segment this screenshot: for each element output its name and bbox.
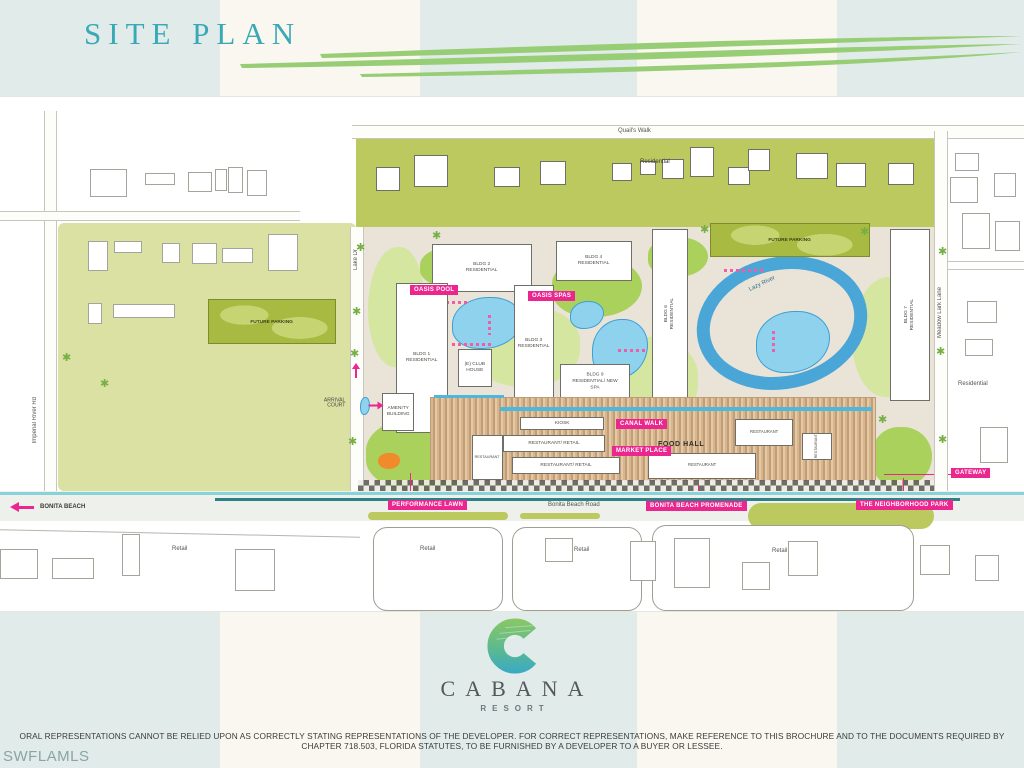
oasis-pool-badge: OASIS POOL bbox=[410, 285, 458, 295]
bonita-beach-label: BONITA BEACH bbox=[40, 504, 85, 510]
palm-tree-icon bbox=[356, 243, 365, 254]
retail-label: Retail bbox=[420, 546, 435, 552]
neighborhood-park-badge: THE NEIGHBORHOOD PARK bbox=[856, 500, 953, 510]
building-outline bbox=[414, 155, 448, 187]
building-outline bbox=[376, 167, 400, 191]
meadow-lark-lane-label: Meadow Lark Lane bbox=[937, 287, 943, 338]
building-outline bbox=[188, 172, 212, 192]
building-outline bbox=[545, 538, 573, 562]
palm-tree-icon bbox=[938, 435, 947, 446]
building-outline bbox=[90, 169, 127, 197]
retail-boundary-line bbox=[0, 529, 360, 538]
legal-disclaimer: ORAL REPRESENTATIONS CANNOT BE RELIED UP… bbox=[9, 731, 1015, 751]
future-parking-west-label: FUTURE PARKING bbox=[251, 319, 294, 324]
retail-parcel bbox=[512, 527, 642, 611]
palm-tree-icon bbox=[938, 247, 947, 258]
retail-label: Retail bbox=[574, 547, 589, 553]
building-outline bbox=[145, 173, 175, 185]
road-edge-line bbox=[0, 492, 1024, 495]
building-outline bbox=[674, 538, 710, 588]
restaurant-foodhall-north: RESTAURANT bbox=[735, 419, 793, 446]
restaurant-west: RESTAURANT bbox=[472, 435, 503, 480]
palm-tree-icon bbox=[860, 227, 869, 238]
bldg-3: BLDG 3 RESIDENTIAL bbox=[514, 285, 554, 403]
lounge-chairs bbox=[452, 343, 492, 346]
building-outline bbox=[888, 163, 914, 185]
offsite-road-topleft bbox=[0, 211, 300, 221]
restaurant-foodhall-south: RESTAURANT bbox=[648, 453, 756, 479]
quails-walk-label: Quail's Walk bbox=[618, 128, 651, 134]
swoosh-decoration bbox=[230, 34, 1024, 78]
retail-label: Retail bbox=[772, 548, 787, 554]
building-outline bbox=[235, 549, 275, 591]
canal-walk-badge: CANAL WALK bbox=[616, 419, 667, 429]
building-outline bbox=[612, 163, 632, 181]
building-outline bbox=[268, 234, 298, 271]
building-outline bbox=[114, 241, 142, 253]
road-center-line bbox=[215, 498, 960, 501]
lounge-chairs bbox=[488, 315, 491, 335]
future-parking-west: FUTURE PARKING bbox=[208, 299, 336, 344]
building-outline bbox=[742, 562, 770, 590]
restaurant-retail-2: RESTAURANT/ RETAIL bbox=[512, 457, 620, 474]
building-outline bbox=[122, 534, 140, 576]
bonita-beach-arrow-icon bbox=[14, 506, 34, 509]
building-outline bbox=[788, 541, 818, 576]
bonita-beach-road-label: Bonita Beach Road bbox=[548, 502, 600, 508]
bldg-7: BLDG 7 RESIDENTIAL bbox=[890, 229, 930, 401]
bldg-6: BLDG 6 RESIDENTIAL bbox=[652, 229, 688, 399]
gateway-badge: GATEWAY bbox=[951, 468, 990, 478]
entry-arrow-icon bbox=[355, 365, 357, 378]
building-outline bbox=[222, 248, 253, 263]
bldg-4: BLDG 4 RESIDENTIAL bbox=[556, 241, 632, 281]
palm-tree-icon bbox=[348, 437, 357, 448]
future-parking-east-label: FUTURE PARKING bbox=[769, 238, 812, 243]
kiosk: KIOSK bbox=[520, 417, 604, 430]
lounge-chairs bbox=[772, 331, 775, 353]
median-strip bbox=[368, 512, 508, 520]
canal-water bbox=[500, 407, 872, 411]
building-outline bbox=[690, 147, 714, 177]
offsite-road-east bbox=[948, 261, 1024, 262]
building-outline bbox=[192, 243, 217, 264]
restaurant-foodhall-east: RESTAURANT bbox=[802, 433, 832, 460]
palm-tree-icon bbox=[352, 307, 361, 318]
site-plan-map: Imperial River Rd Quail's Walk Residenti… bbox=[0, 96, 1024, 612]
oasis-spas-badge: OASIS SPAS bbox=[528, 291, 575, 301]
cabana-logo-icon bbox=[486, 616, 544, 676]
building-outline bbox=[630, 541, 656, 581]
building-outline bbox=[950, 177, 978, 203]
building-outline bbox=[215, 169, 227, 191]
offsite-road-east bbox=[948, 269, 1024, 270]
building-outline bbox=[88, 241, 108, 271]
building-outline bbox=[975, 555, 999, 581]
club-house: (E) CLUB HOUSE bbox=[458, 349, 492, 387]
lounge-chairs bbox=[724, 269, 764, 272]
market-place-badge: MARKET PLACE bbox=[612, 446, 671, 456]
building-outline bbox=[113, 304, 175, 318]
building-outline bbox=[994, 173, 1016, 197]
arrival-court-label: ARRIVAL COURT bbox=[324, 398, 345, 408]
palm-tree-icon bbox=[878, 415, 887, 426]
building-outline bbox=[980, 427, 1008, 463]
building-outline bbox=[0, 549, 38, 579]
palm-tree-icon bbox=[350, 349, 359, 360]
building-outline bbox=[967, 301, 997, 323]
residential-right-label: Residential bbox=[958, 381, 988, 387]
median-strip bbox=[520, 513, 600, 519]
lounge-chairs bbox=[618, 349, 646, 352]
quails-walk-road bbox=[352, 125, 1024, 139]
building-outline bbox=[962, 213, 990, 249]
amenity-arrow-icon bbox=[369, 405, 382, 407]
building-outline bbox=[494, 167, 520, 187]
building-outline bbox=[796, 153, 828, 179]
building-outline bbox=[247, 170, 267, 196]
palm-tree-icon bbox=[62, 353, 71, 364]
brand-subtitle: RESORT bbox=[0, 704, 1024, 713]
building-outline bbox=[88, 303, 102, 324]
amenity-building: AMENITY BUILDING bbox=[382, 393, 414, 431]
building-outline bbox=[728, 167, 750, 185]
building-outline bbox=[52, 558, 94, 579]
building-outline bbox=[995, 221, 1020, 251]
imperial-river-rd-label: Imperial River Rd bbox=[32, 397, 38, 443]
mls-watermark: SWFLAMLS bbox=[3, 748, 90, 765]
building-outline bbox=[540, 161, 566, 185]
bldg-9: BLDG 9 RESIDENTIAL/ NEW SPA bbox=[560, 364, 630, 400]
future-parking-east: FUTURE PARKING bbox=[710, 223, 870, 257]
building-outline bbox=[965, 339, 993, 356]
palm-tree-icon bbox=[432, 231, 441, 242]
palm-tree-icon bbox=[700, 225, 709, 236]
canal-water bbox=[434, 395, 504, 398]
performance-lawn-badge: PERFORMANCE LAWN bbox=[388, 500, 467, 510]
building-outline bbox=[228, 167, 243, 193]
palm-tree-icon bbox=[100, 379, 109, 390]
building-outline bbox=[748, 149, 770, 171]
residential-top-label: Residential bbox=[640, 159, 670, 165]
restaurant-retail-1: RESTAURANT/ RETAIL bbox=[503, 435, 605, 452]
retail-label: Retail bbox=[172, 546, 187, 552]
site-plan-page: { "header": { "title": "SITE PLAN" }, "m… bbox=[0, 0, 1024, 768]
building-outline bbox=[162, 243, 180, 263]
building-outline bbox=[836, 163, 866, 187]
retail-parcel bbox=[373, 527, 503, 611]
building-outline bbox=[955, 153, 979, 171]
imperial-river-road bbox=[44, 111, 57, 493]
bonita-beach-promenade-badge: BONITA BEACH PROMENADE bbox=[646, 501, 747, 511]
palm-tree-icon bbox=[936, 347, 945, 358]
brand-name: CABANA bbox=[0, 676, 1024, 702]
building-outline bbox=[920, 545, 950, 575]
